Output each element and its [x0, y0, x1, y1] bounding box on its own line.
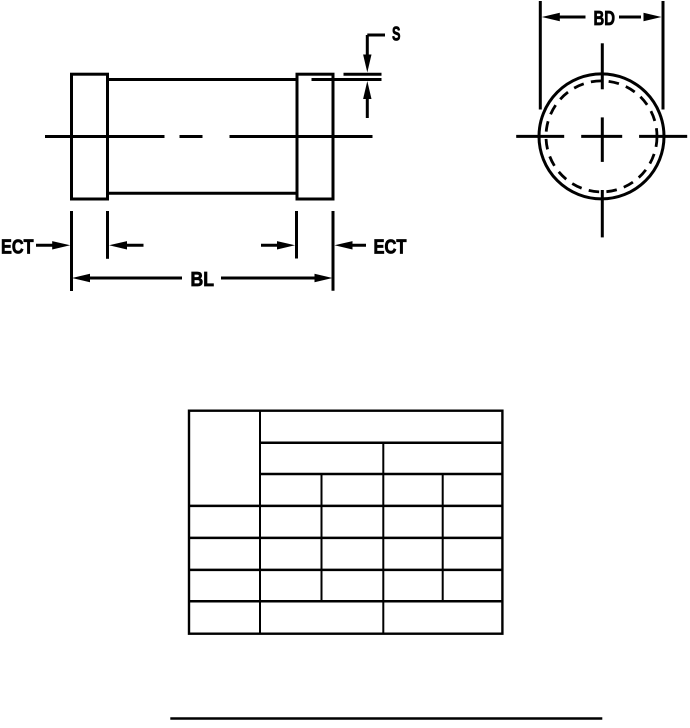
svg-text:ECT: ECT — [374, 235, 407, 258]
svg-text:ECT: ECT — [1, 235, 34, 258]
svg-text:S: S — [392, 22, 401, 45]
svg-text:BL: BL — [191, 268, 215, 291]
svg-text:BD: BD — [594, 7, 616, 30]
